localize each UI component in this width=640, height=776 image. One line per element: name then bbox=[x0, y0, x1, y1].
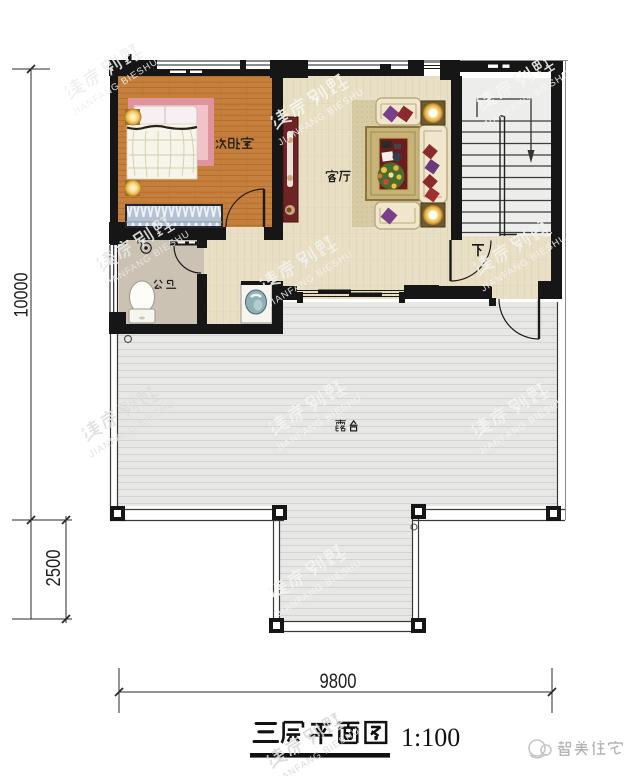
svg-text:2500: 2500 bbox=[43, 550, 65, 587]
svg-text:10000: 10000 bbox=[12, 273, 33, 318]
svg-text:9800: 9800 bbox=[320, 670, 357, 693]
svg-text:1:100: 1:100 bbox=[401, 723, 460, 752]
